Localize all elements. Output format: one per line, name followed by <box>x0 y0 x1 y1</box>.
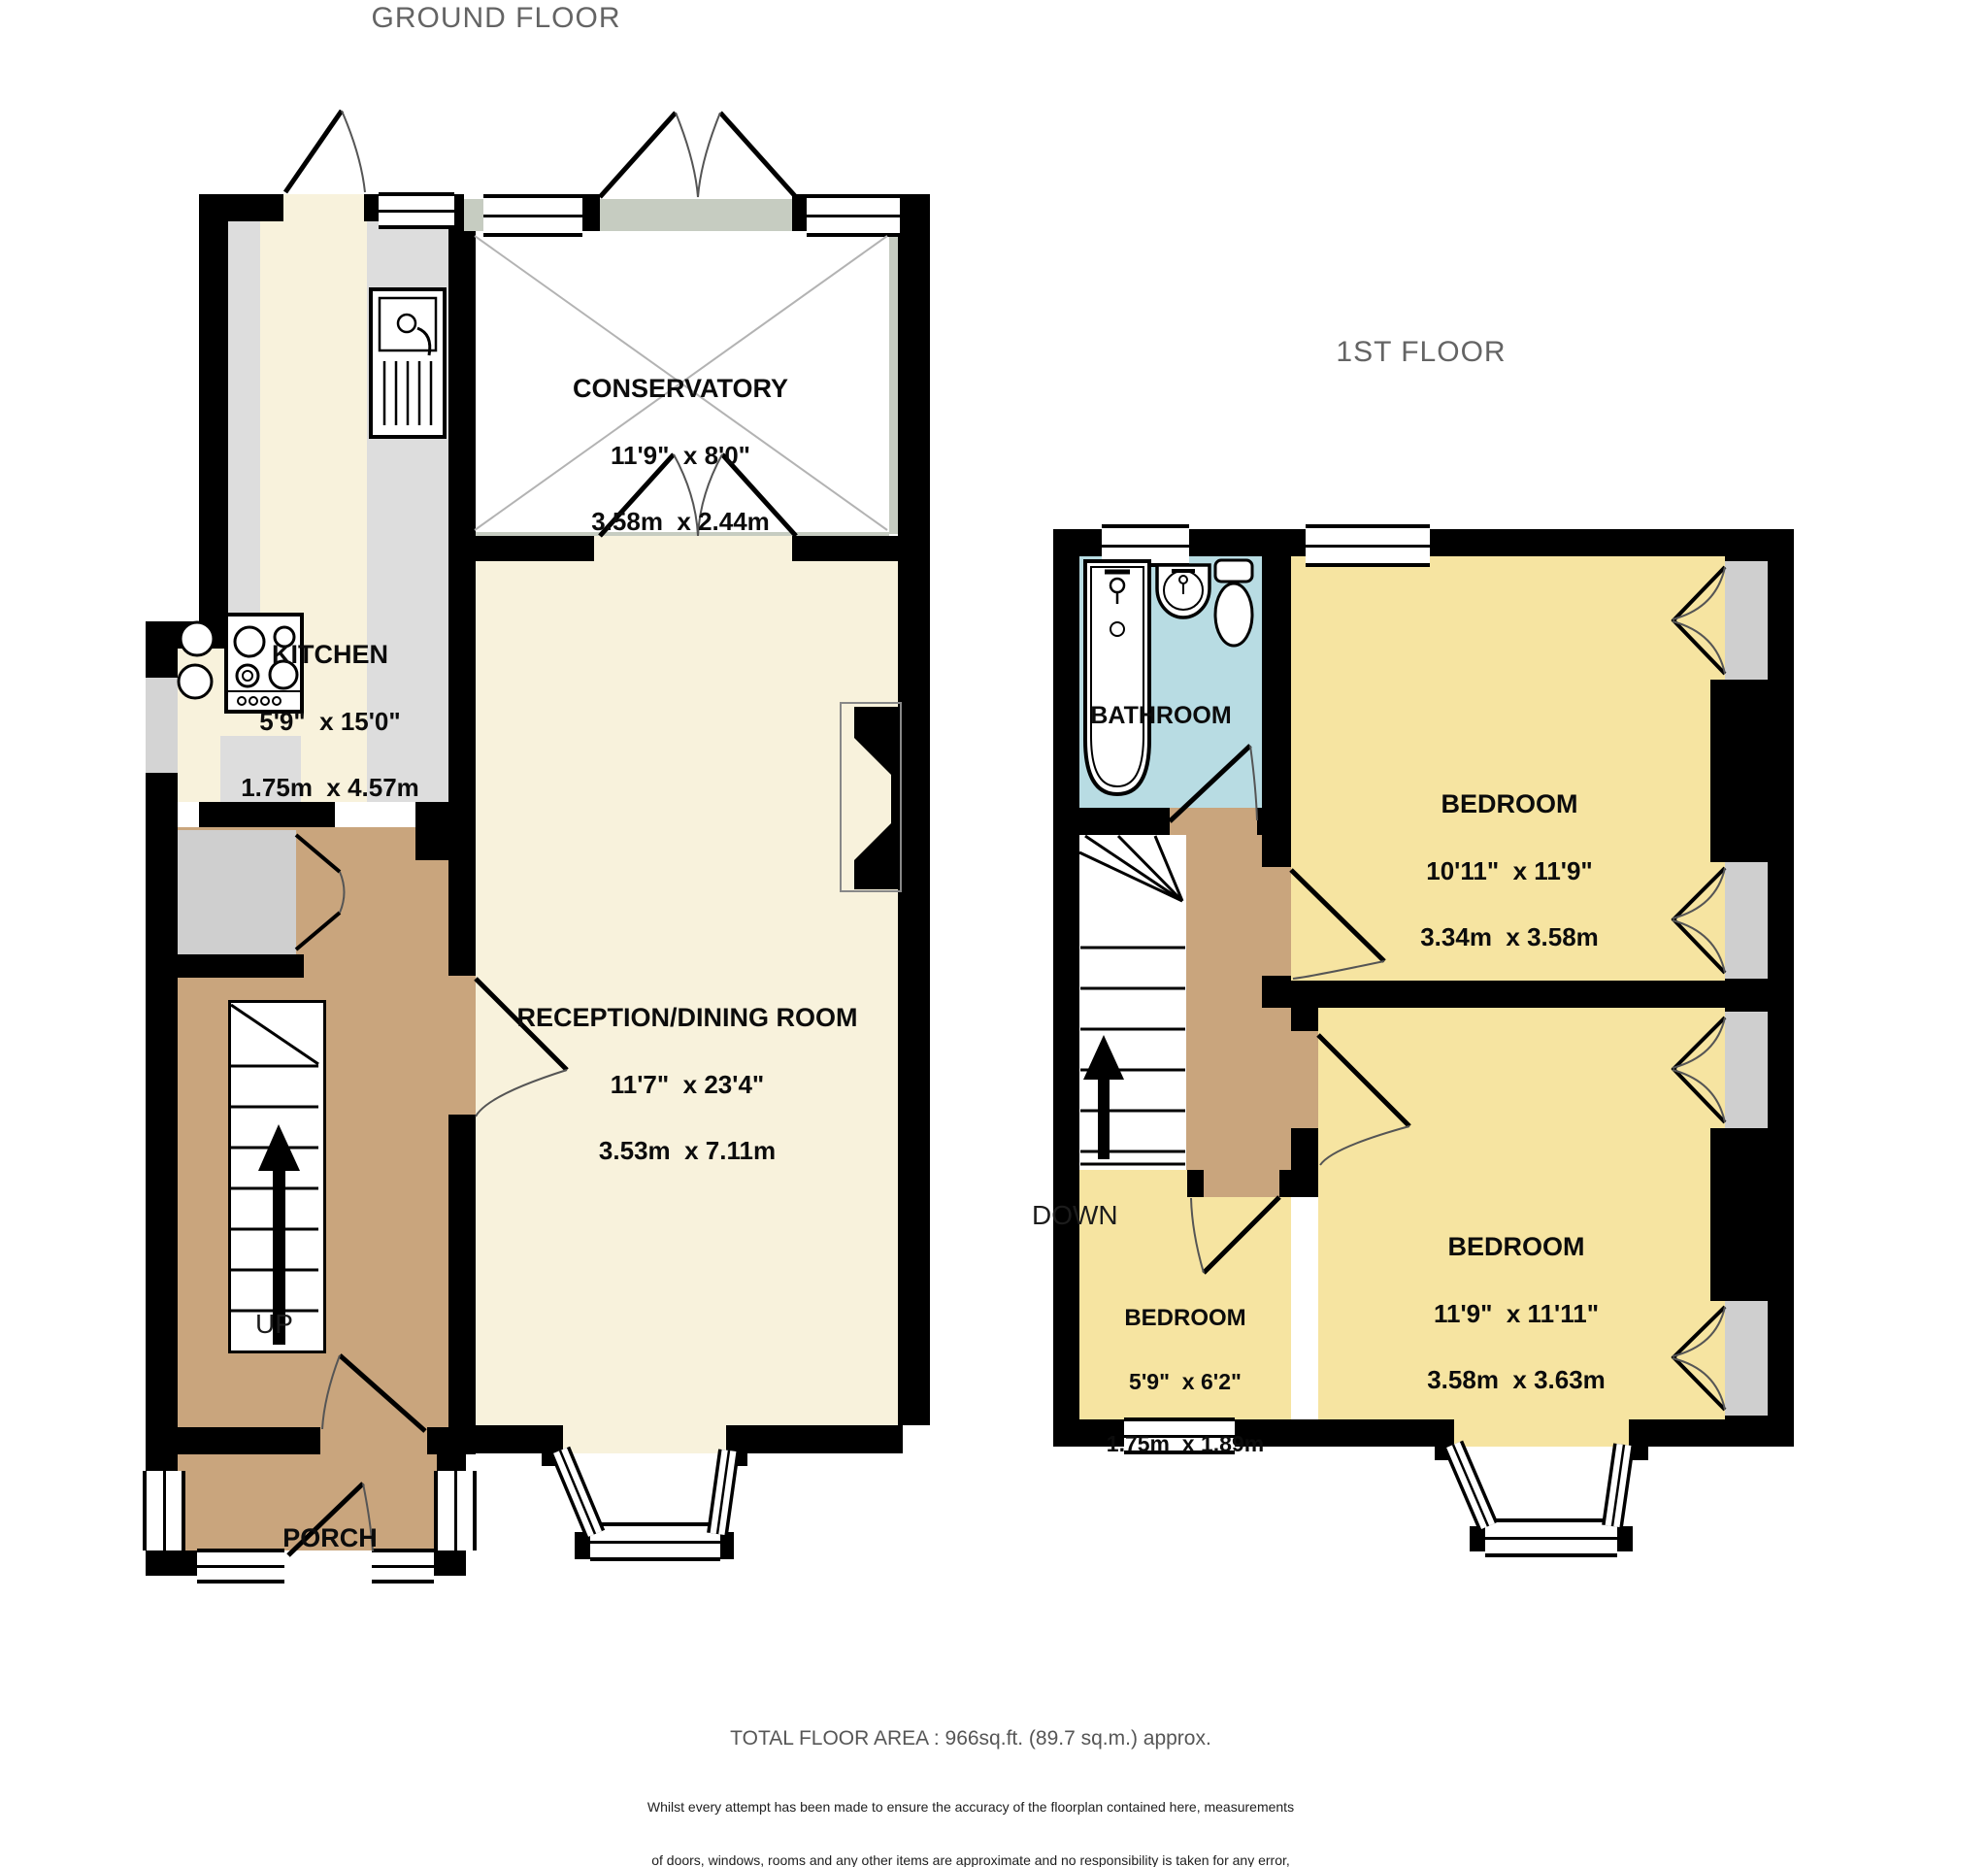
wall <box>582 194 600 231</box>
wall <box>178 954 304 978</box>
kitchen-name: KITCHEN <box>241 640 419 671</box>
wardrobe-alcove <box>1725 1012 1768 1128</box>
conservatory-size-imperial: 11'9" x 8'0" <box>573 441 788 470</box>
wall <box>432 1550 466 1576</box>
wardrobe-alcove <box>1725 561 1768 680</box>
wall <box>415 802 448 860</box>
wall <box>898 194 930 233</box>
disclaimer: Whilst every attempt has been made to en… <box>644 1763 1298 1867</box>
chimney-breast <box>1710 680 1725 862</box>
window <box>197 1549 284 1584</box>
conservatory-name: CONSERVATORY <box>573 374 788 405</box>
bedroom2-size-imperial: 11'9" x 11'11" <box>1427 1299 1606 1328</box>
bay-window <box>1485 1518 1617 1557</box>
bedroom3-name: BEDROOM <box>1107 1305 1264 1332</box>
wall <box>199 194 228 649</box>
bay-corner <box>726 1425 747 1466</box>
ground-floor-title: GROUND FLOOR <box>371 2 620 35</box>
bedroom2-label: BEDROOM 11'9" x 11'11" 3.58m x 3.63m <box>1427 1196 1606 1431</box>
porch-name: PORCH <box>282 1523 378 1554</box>
kitchen-size-imperial: 5'9" x 15'0" <box>241 707 419 736</box>
disclaimer-line: of doors, windows, rooms and any other i… <box>644 1851 1298 1867</box>
kitchen-counter-left <box>228 221 260 649</box>
total-floor-area: TOTAL FLOOR AREA : 966sq.ft. (89.7 sq.m.… <box>730 1727 1211 1750</box>
first-floor-title: 1ST FLOOR <box>1336 336 1506 369</box>
wall <box>364 194 379 221</box>
kitchen-label: KITCHEN 5'9" x 15'0" 1.75m x 4.57m <box>241 604 419 839</box>
window <box>1102 524 1189 567</box>
window <box>1306 524 1430 567</box>
door-opening <box>1170 808 1257 835</box>
bedroom2-size-metric: 3.58m x 3.63m <box>1427 1365 1606 1394</box>
bedroom1-label: BEDROOM 10'11" x 11'9" 3.34m x 3.58m <box>1420 753 1599 988</box>
wardrobe-alcove <box>1725 1301 1768 1416</box>
wall <box>1291 1008 1318 1031</box>
window-side <box>146 673 178 778</box>
wall <box>146 1550 203 1576</box>
window <box>379 192 454 229</box>
door-opening <box>1291 1031 1318 1128</box>
window <box>143 1471 185 1550</box>
bedroom1-name: BEDROOM <box>1420 789 1599 820</box>
kitchen-door <box>285 111 365 192</box>
bedroom3-size-imperial: 5'9" x 6'2" <box>1107 1369 1264 1395</box>
reception-label: RECEPTION/DINING ROOM 11'7" x 23'4" 3.53… <box>516 967 857 1202</box>
bay-window <box>590 1522 720 1561</box>
wall <box>146 1427 320 1454</box>
conservatory-size-metric: 3.58m x 2.44m <box>573 507 788 536</box>
wall <box>792 536 898 561</box>
ground-stairs <box>228 1000 326 1353</box>
bathroom-name: BATHROOM <box>1090 702 1231 730</box>
wall <box>1279 1170 1291 1197</box>
door-opening <box>448 976 476 1115</box>
window <box>434 1471 477 1550</box>
bedroom3-label: BEDROOM 5'9" x 6'2" 1.75m x 1.89m <box>1107 1269 1264 1494</box>
reception-size-metric: 3.53m x 7.11m <box>516 1136 857 1165</box>
door-opening <box>1204 1170 1279 1197</box>
first-stairs-floor <box>1079 835 1186 1165</box>
wall <box>898 231 930 1425</box>
wall <box>1262 976 1291 1008</box>
bay-opening <box>563 1425 726 1453</box>
bay-corner <box>1615 1526 1633 1551</box>
wall <box>747 1425 903 1453</box>
bedroom1-size-imperial: 10'11" x 11'9" <box>1420 856 1599 885</box>
bay-corner <box>542 1425 563 1466</box>
wall <box>448 1115 476 1427</box>
door-opening <box>1262 867 1291 976</box>
reception-name: RECEPTION/DINING ROOM <box>516 1003 857 1034</box>
wall <box>1053 529 1079 1447</box>
window <box>483 194 582 237</box>
porch-label: PORCH <box>282 1487 378 1590</box>
wall <box>199 194 283 221</box>
reception-size-imperial: 11'7" x 23'4" <box>516 1070 857 1099</box>
wall <box>448 231 476 976</box>
disclaimer-line: Whilst every attempt has been made to en… <box>644 1798 1298 1817</box>
kitchen-size-metric: 1.75m x 4.57m <box>241 773 419 802</box>
window <box>807 194 900 237</box>
wall <box>1257 808 1291 835</box>
bedroom1-size-metric: 3.34m x 3.58m <box>1420 922 1599 951</box>
up-label: UP <box>255 1309 293 1340</box>
bedroom2-name: BEDROOM <box>1427 1232 1606 1263</box>
bathroom-label: BATHROOM <box>1090 666 1231 767</box>
wall <box>1291 1128 1318 1197</box>
wardrobe-alcove <box>1725 862 1768 979</box>
conservatory-label: CONSERVATORY 11'9" x 8'0" 3.58m x 2.44m <box>573 338 788 573</box>
wall <box>1053 808 1170 835</box>
chimney-breast <box>1710 1128 1725 1301</box>
window <box>372 1549 434 1584</box>
bay-window-first <box>1453 1445 1624 1526</box>
bay-corner <box>1629 1419 1648 1460</box>
kitchen-door-threshold <box>283 194 364 221</box>
hall-cupboard <box>178 830 296 954</box>
floorplan-page: GROUND FLOOR 1ST FLOOR <box>0 0 1988 1867</box>
chimney-breast <box>854 707 898 889</box>
wall <box>1187 1170 1204 1197</box>
conservatory-frame-right <box>889 231 898 534</box>
bedroom3-size-metric: 1.75m x 1.89m <box>1107 1431 1264 1457</box>
down-label: DOWN <box>1032 1200 1118 1231</box>
